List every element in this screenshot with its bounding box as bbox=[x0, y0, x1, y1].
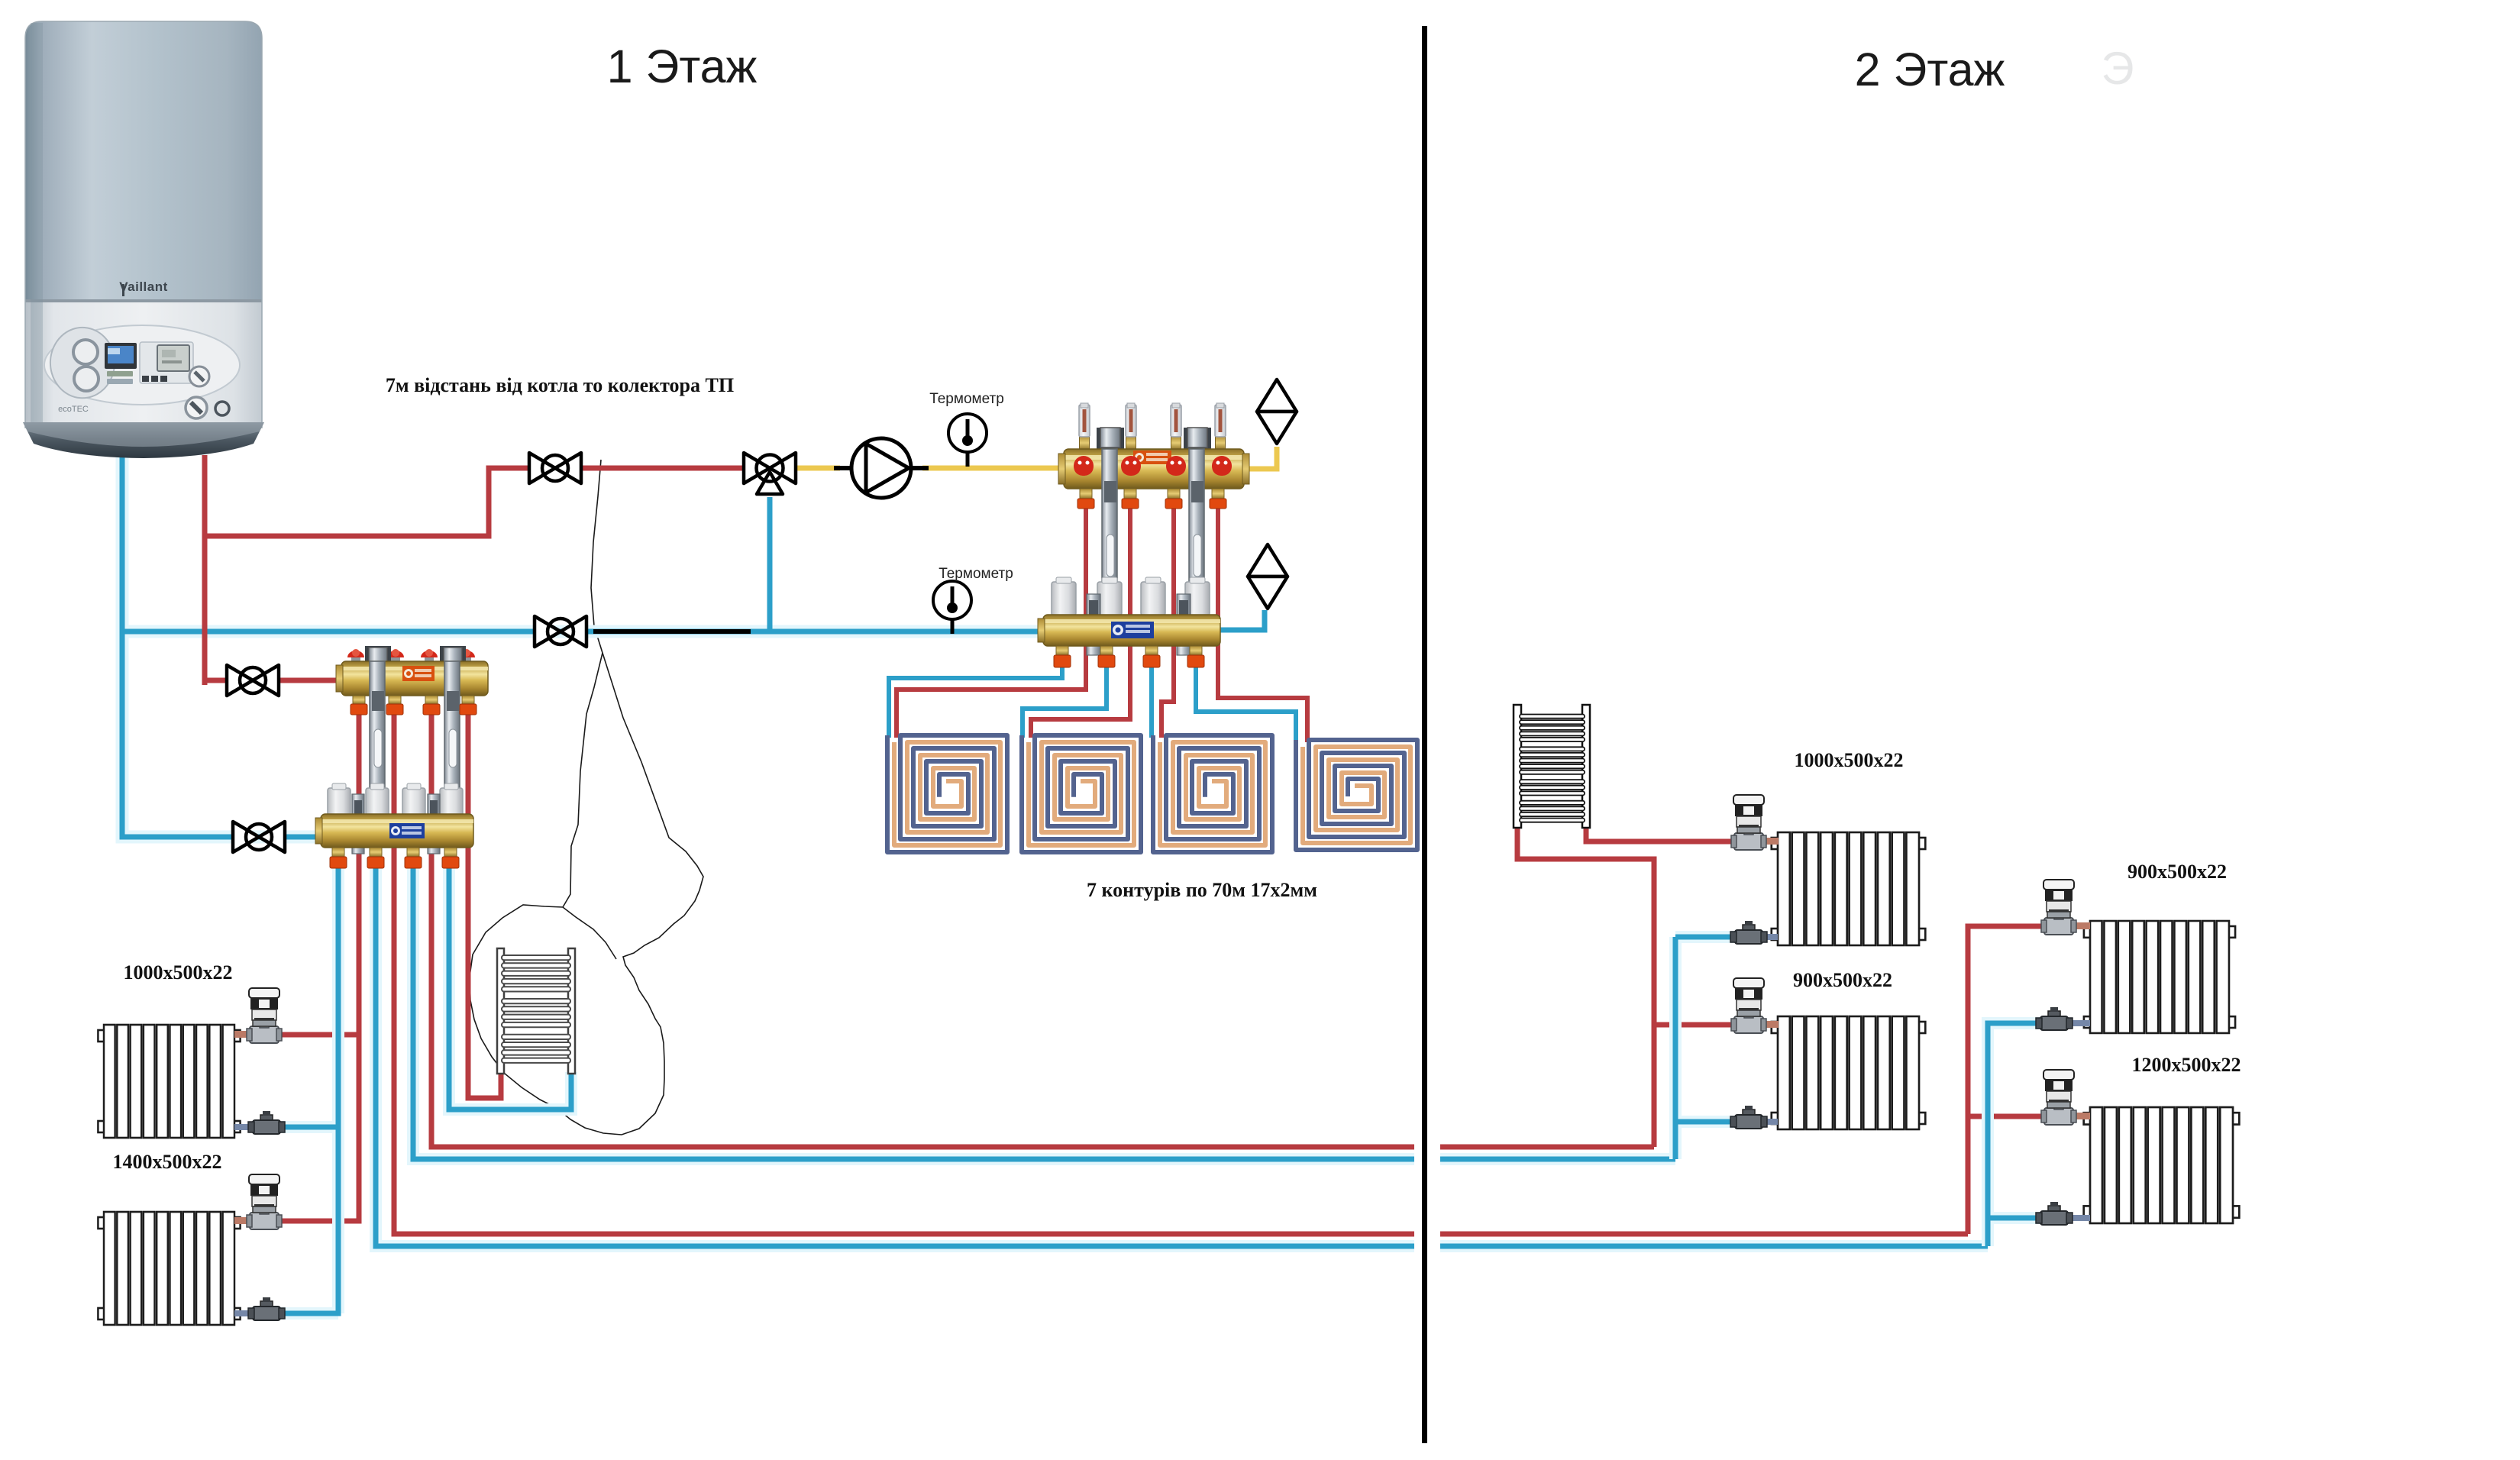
svg-text:Термометр: Термометр bbox=[939, 566, 1013, 582]
svg-text:1000x500x22: 1000x500x22 bbox=[124, 961, 233, 984]
svg-text:7м відстань від котла то колек: 7м відстань від котла то колектора ТП bbox=[386, 374, 734, 396]
svg-text:900x500x22: 900x500x22 bbox=[2127, 861, 2227, 883]
svg-text:1000x500x22: 1000x500x22 bbox=[1795, 749, 1904, 771]
svg-text:1200x500x22: 1200x500x22 bbox=[2132, 1054, 2241, 1076]
svg-text:900x500x22: 900x500x22 bbox=[1793, 969, 1892, 991]
svg-text:1 Этаж: 1 Этаж bbox=[607, 40, 758, 92]
svg-text:Термометр: Термометр bbox=[929, 391, 1004, 407]
svg-text:7 контурів по 70м 17х2мм: 7 контурів по 70м 17х2мм bbox=[1087, 879, 1317, 901]
svg-text:Э: Э bbox=[2101, 43, 2134, 94]
svg-text:ecoTEC: ecoTEC bbox=[58, 405, 89, 414]
svg-text:1400x500x22: 1400x500x22 bbox=[113, 1151, 222, 1173]
svg-text:Vaillant: Vaillant bbox=[119, 279, 168, 294]
svg-text:2 Этаж: 2 Этаж bbox=[1855, 44, 2005, 95]
